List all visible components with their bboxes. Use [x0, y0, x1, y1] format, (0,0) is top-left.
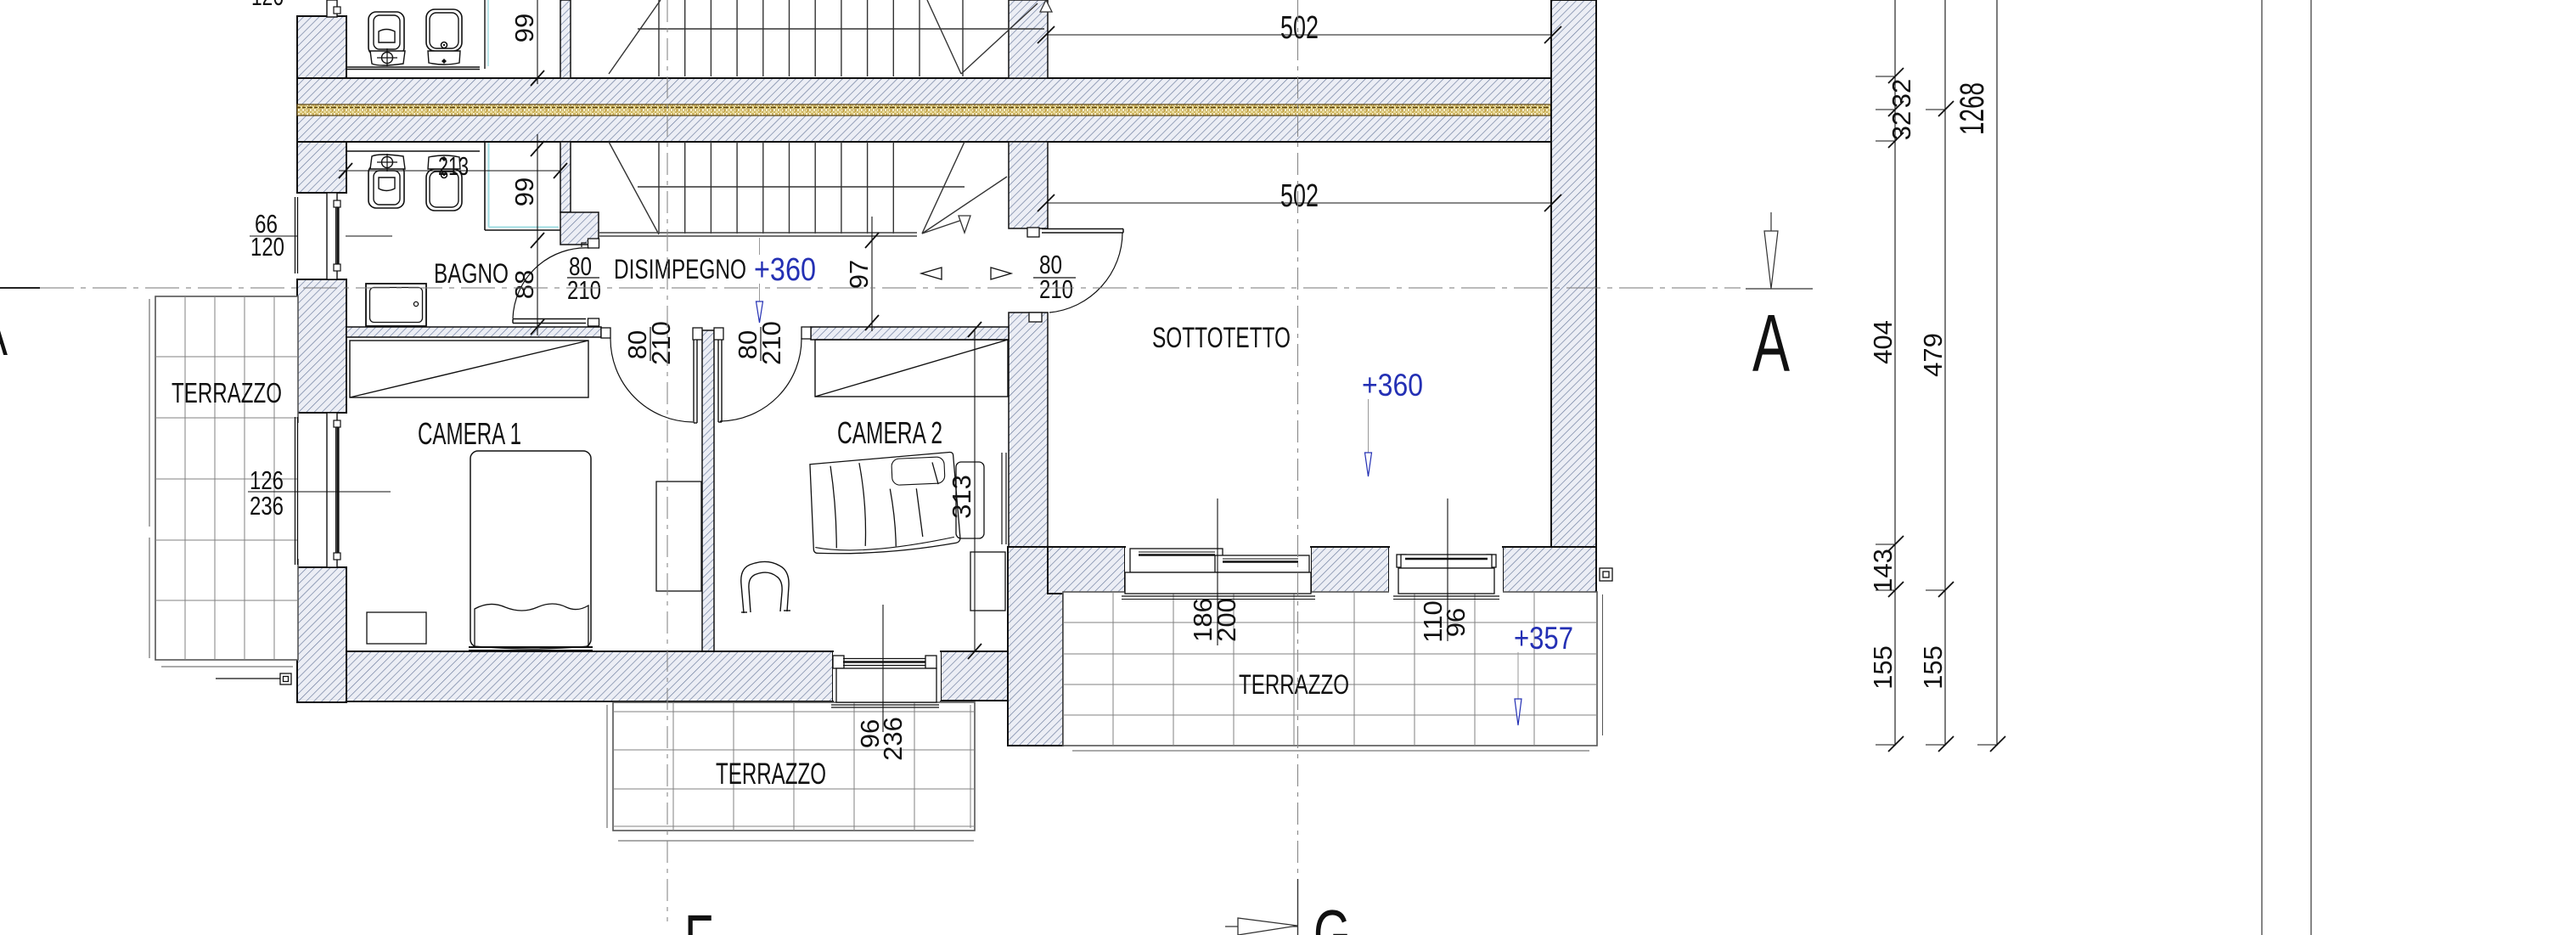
svg-text:120: 120 — [250, 232, 284, 262]
svg-text:502: 502 — [1280, 10, 1319, 46]
svg-text:SOTTOTETTO: SOTTOTETTO — [1152, 322, 1291, 354]
svg-text:A: A — [0, 306, 8, 367]
svg-text:99: 99 — [509, 14, 539, 42]
svg-text:404: 404 — [1868, 320, 1898, 364]
svg-text:CAMERA 2: CAMERA 2 — [837, 415, 942, 450]
svg-text:155: 155 — [1868, 645, 1898, 690]
svg-text:1268: 1268 — [1954, 82, 1991, 135]
svg-text:TERRAZZO: TERRAZZO — [1239, 669, 1349, 700]
svg-text:200: 200 — [1212, 598, 1241, 642]
svg-text:BAGNO: BAGNO — [434, 258, 509, 289]
svg-text:F: F — [684, 901, 713, 935]
svg-text:155: 155 — [1918, 645, 1948, 690]
svg-text:313: 313 — [947, 475, 976, 519]
svg-text:502: 502 — [1280, 178, 1319, 214]
svg-text:210: 210 — [1039, 274, 1073, 304]
svg-text:CAMERA 1: CAMERA 1 — [418, 416, 521, 451]
svg-text:+360: +360 — [754, 252, 816, 288]
svg-text:32: 32 — [1887, 79, 1916, 108]
svg-text:210: 210 — [567, 275, 601, 305]
svg-text:DISIMPEGNO: DISIMPEGNO — [614, 254, 746, 284]
svg-text:210: 210 — [756, 321, 786, 365]
svg-text:213: 213 — [438, 151, 469, 181]
svg-text:32: 32 — [1887, 111, 1916, 140]
svg-text:G: G — [1313, 896, 1351, 935]
svg-text:96: 96 — [1441, 608, 1471, 637]
svg-text:99: 99 — [509, 177, 539, 206]
svg-text:TERRAZZO: TERRAZZO — [172, 377, 282, 408]
svg-text:TERRAZZO: TERRAZZO — [716, 758, 826, 791]
svg-text:236: 236 — [878, 717, 908, 761]
svg-text:88: 88 — [509, 270, 539, 299]
svg-text:97: 97 — [844, 260, 874, 289]
svg-text:+357: +357 — [1514, 621, 1573, 656]
svg-text:236: 236 — [250, 491, 284, 521]
svg-text:A: A — [1752, 298, 1790, 389]
svg-text:479: 479 — [1918, 333, 1948, 377]
svg-text:210: 210 — [646, 321, 676, 365]
svg-text:+360: +360 — [1362, 368, 1423, 403]
svg-text:126: 126 — [251, 0, 284, 11]
svg-text:143: 143 — [1868, 549, 1898, 593]
